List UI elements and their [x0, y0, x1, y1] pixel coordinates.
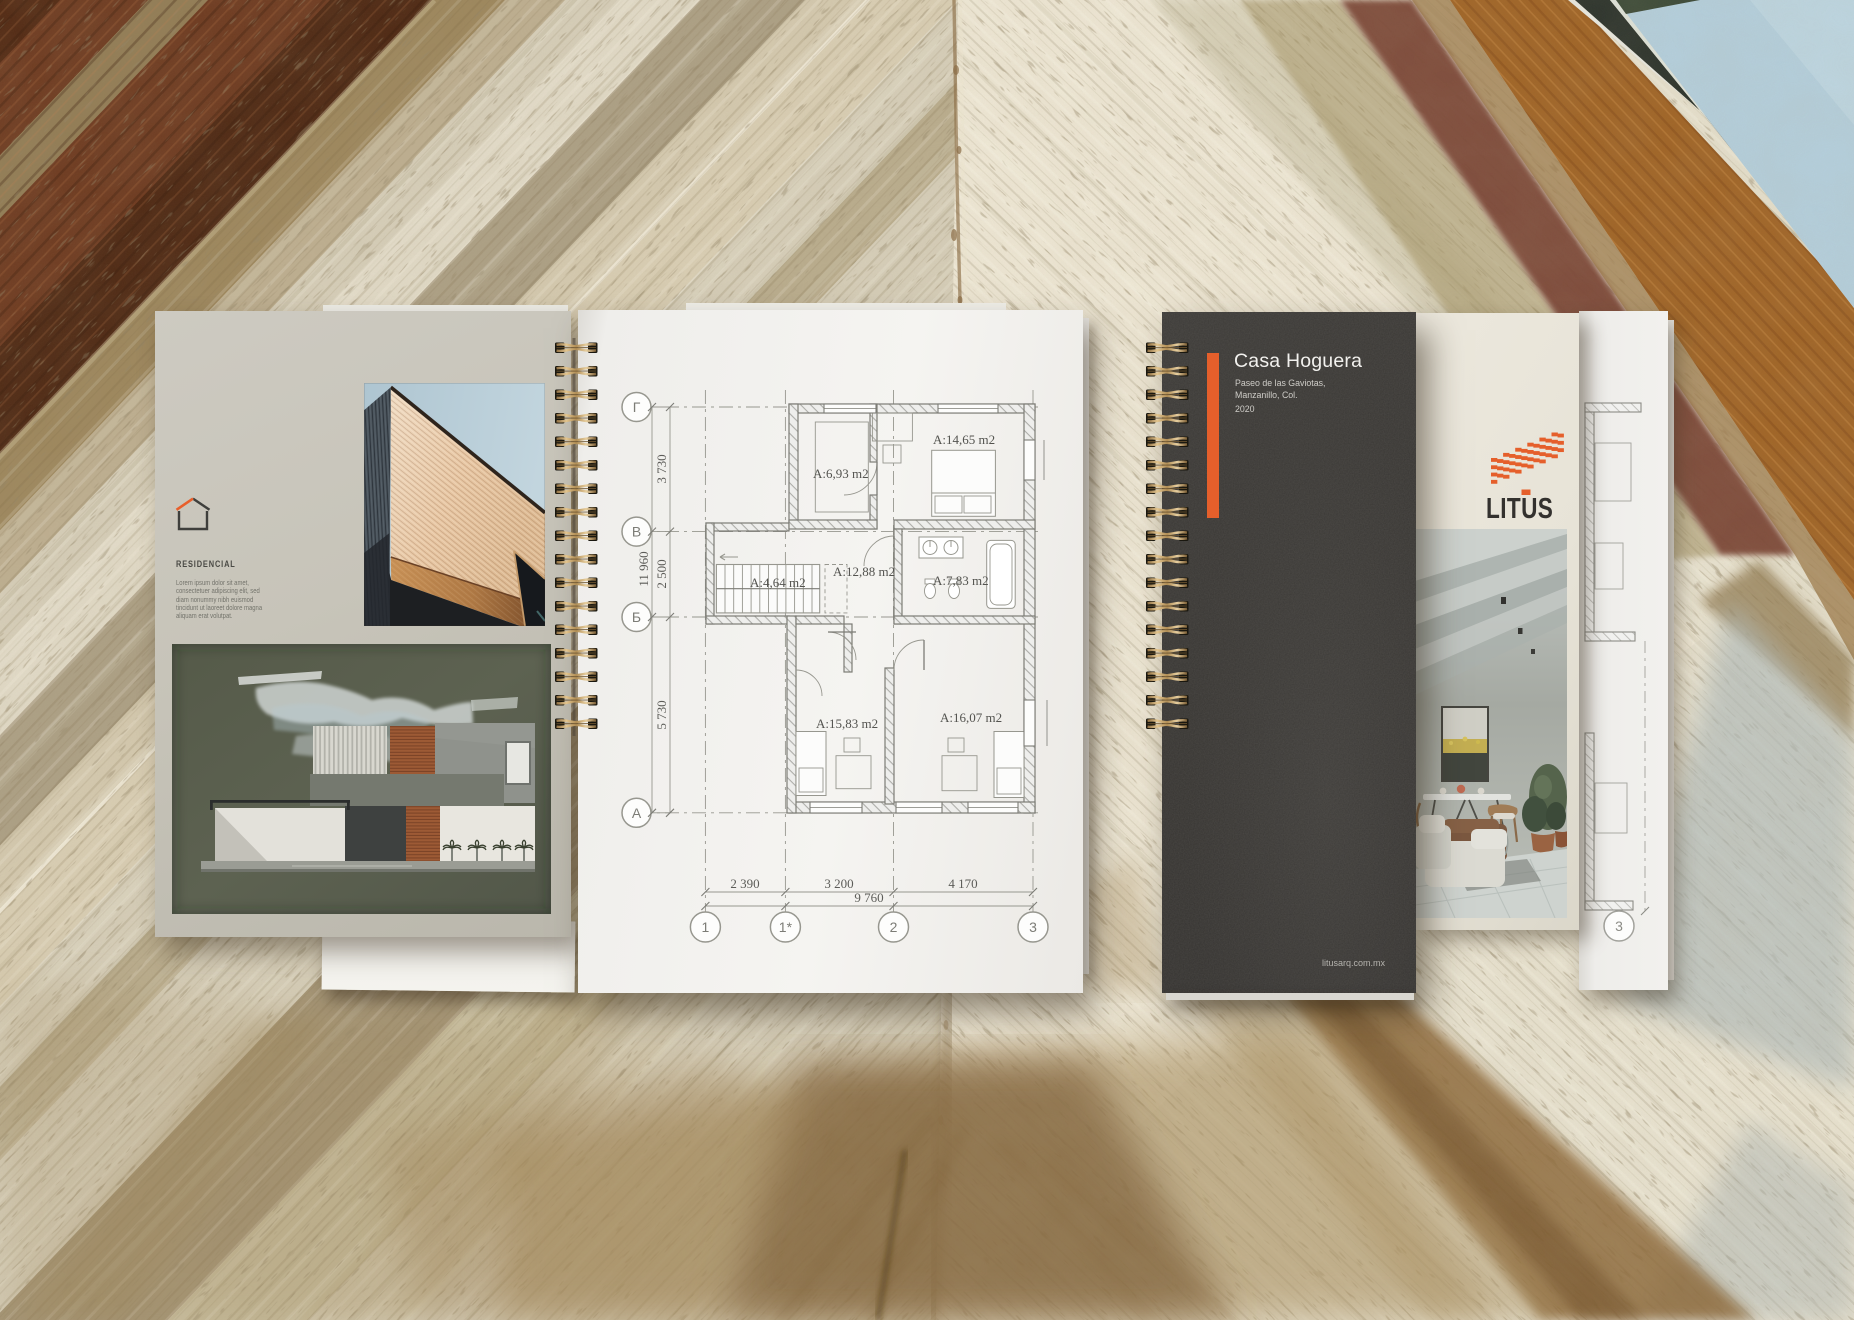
svg-text:A:4,64 m2: A:4,64 m2: [750, 575, 806, 590]
svg-text:4 170: 4 170: [948, 876, 977, 891]
svg-text:Г: Г: [633, 399, 641, 415]
svg-text:Б: Б: [632, 609, 641, 625]
svg-text:2 390: 2 390: [730, 876, 759, 891]
svg-text:3 730: 3 730: [654, 454, 669, 483]
svg-text:A:15,83 m2: A:15,83 m2: [816, 716, 878, 731]
svg-text:3 200: 3 200: [824, 876, 853, 891]
svg-text:3: 3: [1615, 918, 1623, 934]
svg-text:A:12,88 m2: A:12,88 m2: [833, 564, 895, 579]
svg-text:9 760: 9 760: [854, 890, 883, 905]
svg-text:A:6,93 m2: A:6,93 m2: [813, 466, 869, 481]
svg-text:A:16,07 m2: A:16,07 m2: [940, 710, 1002, 725]
svg-text:В: В: [632, 524, 641, 540]
svg-text:3: 3: [1029, 919, 1037, 935]
svg-text:2: 2: [890, 919, 898, 935]
svg-text:1: 1: [702, 919, 710, 935]
svg-text:5 730: 5 730: [654, 700, 669, 729]
svg-text:А: А: [632, 805, 642, 821]
svg-text:2 500: 2 500: [654, 559, 669, 588]
svg-text:A:14,65 m2: A:14,65 m2: [933, 432, 995, 447]
svg-text:1*: 1*: [779, 919, 793, 935]
svg-text:A:7,83 m2: A:7,83 m2: [933, 573, 989, 588]
svg-text:11 960: 11 960: [636, 551, 651, 586]
svg-text:LITUS: LITUS: [1486, 491, 1553, 524]
